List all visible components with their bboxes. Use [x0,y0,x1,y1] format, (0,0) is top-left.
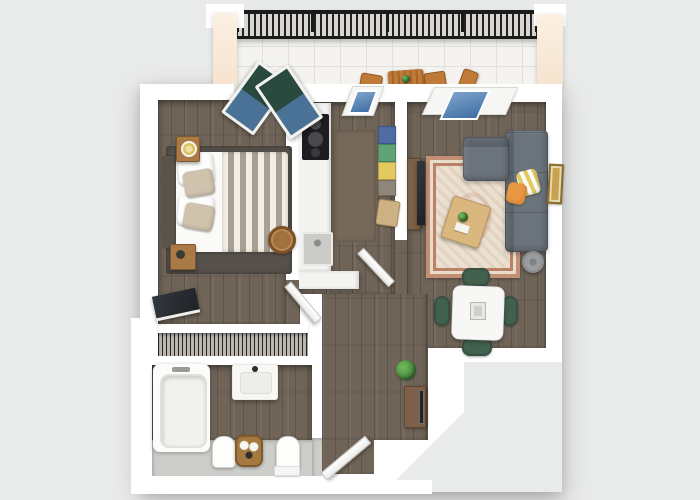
vanity-faucet [252,366,258,372]
wall-art [547,164,564,205]
tub-faucet [172,367,190,372]
dining-chair [434,296,450,326]
bedside-lamp [181,141,197,157]
railing-post [461,10,464,32]
railing-post [386,10,389,32]
toilet [212,436,236,468]
bed-headboard [162,156,176,248]
bed-pillow-beige [182,168,216,199]
vanity-basin [240,372,272,394]
sectional-sofa-chaise [463,137,509,181]
kitchen-stool [375,199,400,228]
bed-pillow-beige [182,202,216,233]
bidet [276,436,300,470]
bathroom-doorway-floor [312,438,322,476]
coffee-table-plant [458,212,468,222]
entry-mirror [419,390,424,424]
balcony-wall-right [537,14,563,86]
balcony-wall-left [213,13,237,86]
shelf-box-yellow [378,162,396,180]
shelf-box-gray [378,180,396,196]
closet-hanging-clothes [158,333,308,356]
table-centerpiece [470,302,486,320]
closet-frame-top [158,324,308,333]
shelf-box-blue [378,126,396,144]
kitchen-sink [302,232,333,266]
railing-post [311,10,314,32]
floor-plan-scene [0,0,700,500]
dining-chair [462,268,490,286]
nightstand-decor [176,250,185,259]
hallway-plant [396,360,416,380]
storage-basket [268,226,296,254]
living-room-tv [417,161,425,225]
kitchen-runner-rug [334,130,376,242]
towel-basket [235,435,263,467]
floor-lamp [522,251,544,273]
bath-mat [274,466,300,476]
shelf-box-green [378,144,396,162]
kitchen-counter-return [299,271,359,289]
bathtub-basin [160,374,207,448]
table-plant [402,75,410,83]
dining-chair [462,338,492,356]
